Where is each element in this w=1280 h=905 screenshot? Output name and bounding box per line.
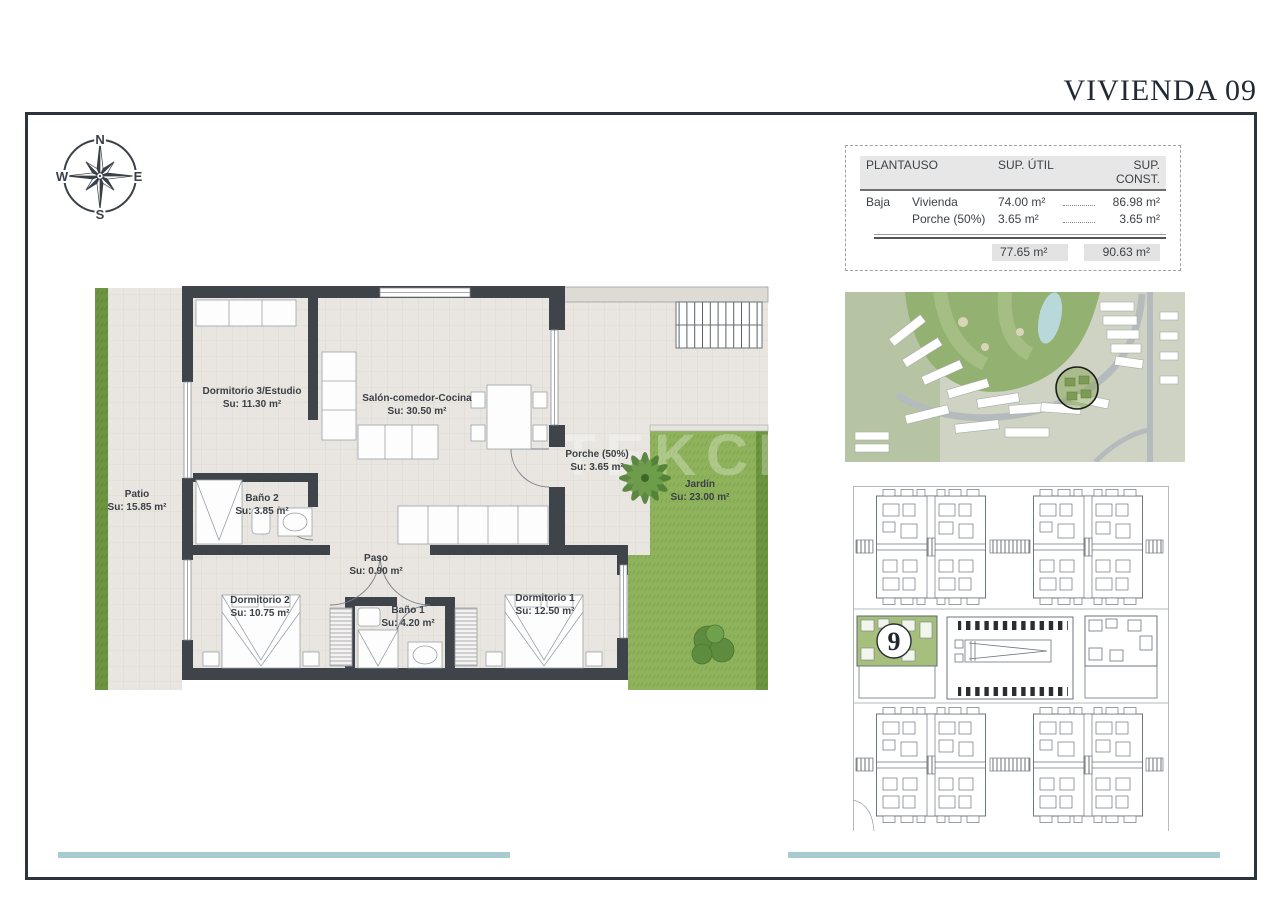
room-label-patio: PatioSu: 15.85 m² <box>108 488 167 514</box>
total-const: 90.63 m² <box>1084 244 1160 261</box>
cell-const: 3.65 m² <box>1098 212 1160 226</box>
col-const: SUP. CONST. <box>1104 158 1160 186</box>
room-label-dormitorio2: Dormitorio 2Su: 10.75 m² <box>230 594 289 620</box>
room-label-bano2: Baño 2Su: 3.85 m² <box>235 492 288 518</box>
compass-rose: N E S W <box>50 126 150 226</box>
pool-court <box>947 617 1073 699</box>
compass-s-label: S <box>96 207 105 222</box>
table-header: PLANTA USO SUP. ÚTIL SUP. CONST. <box>860 156 1166 191</box>
site-location-map <box>845 292 1185 462</box>
compass-n-label: N <box>95 132 104 147</box>
room-label-porche: Porche (50%)Su: 3.65 m² <box>565 448 628 474</box>
compass-e-label: E <box>134 169 143 184</box>
cell-util: 74.00 m² <box>998 195 1060 209</box>
col-util: SUP. ÚTIL <box>998 158 1104 186</box>
totals-row: 77.65 m² 90.63 m² <box>860 244 1166 261</box>
highlighted-unit-9: 9 <box>857 616 937 698</box>
col-planta: PLANTA <box>866 158 912 186</box>
total-divider <box>874 234 1166 239</box>
room-label-salon: Salón-comedor-CocinaSu: 30.50 m² <box>362 392 471 418</box>
total-util: 77.65 m² <box>992 244 1068 261</box>
room-label-jardin: JardínSu: 23.00 m² <box>671 478 730 504</box>
room-label-paso: PasoSu: 0.90 m² <box>349 552 402 578</box>
compass-w-label: W <box>56 169 69 184</box>
room-label-dormitorio3: Dormitorio 3/EstudioSu: 11.30 m² <box>203 385 302 411</box>
cell-uso: Porche (50%) <box>912 212 998 226</box>
cell-planta: Baja <box>866 195 912 209</box>
dotted-leader <box>1063 221 1095 223</box>
dotted-leader <box>1063 204 1095 206</box>
page-title: VIVIENDA 09 <box>1064 74 1257 108</box>
entry-band <box>563 287 768 302</box>
grass-strip-left <box>95 288 108 690</box>
footer-accent-bar-right <box>788 852 1220 858</box>
middle-right-unit <box>1085 616 1157 698</box>
table-row: Porche (50%) 3.65 m² 3.65 m² <box>860 212 1166 226</box>
cell-const: 86.98 m² <box>1098 195 1160 209</box>
surface-summary-table: PLANTA USO SUP. ÚTIL SUP. CONST. Baja Vi… <box>845 145 1181 271</box>
cell-uso: Vivienda <box>912 195 998 209</box>
unit-number: 9 <box>888 627 901 656</box>
room-label-dormitorio1: Dormitorio 1Su: 12.50 m² <box>515 592 574 618</box>
col-uso: USO <box>912 158 998 186</box>
cell-util: 3.65 m² <box>998 212 1060 226</box>
key-plan: 9 <box>853 482 1169 832</box>
footer-accent-bar-left <box>58 852 510 858</box>
brochure-page: VIVIENDA 09 N E S W PLANTA USO SUP. ÚT <box>0 0 1280 905</box>
table-row: Baja Vivienda 74.00 m² 86.98 m² <box>860 195 1166 209</box>
map-plot-highlight <box>1056 367 1098 409</box>
room-label-bano1: Baño 1Su: 4.20 m² <box>381 604 434 630</box>
